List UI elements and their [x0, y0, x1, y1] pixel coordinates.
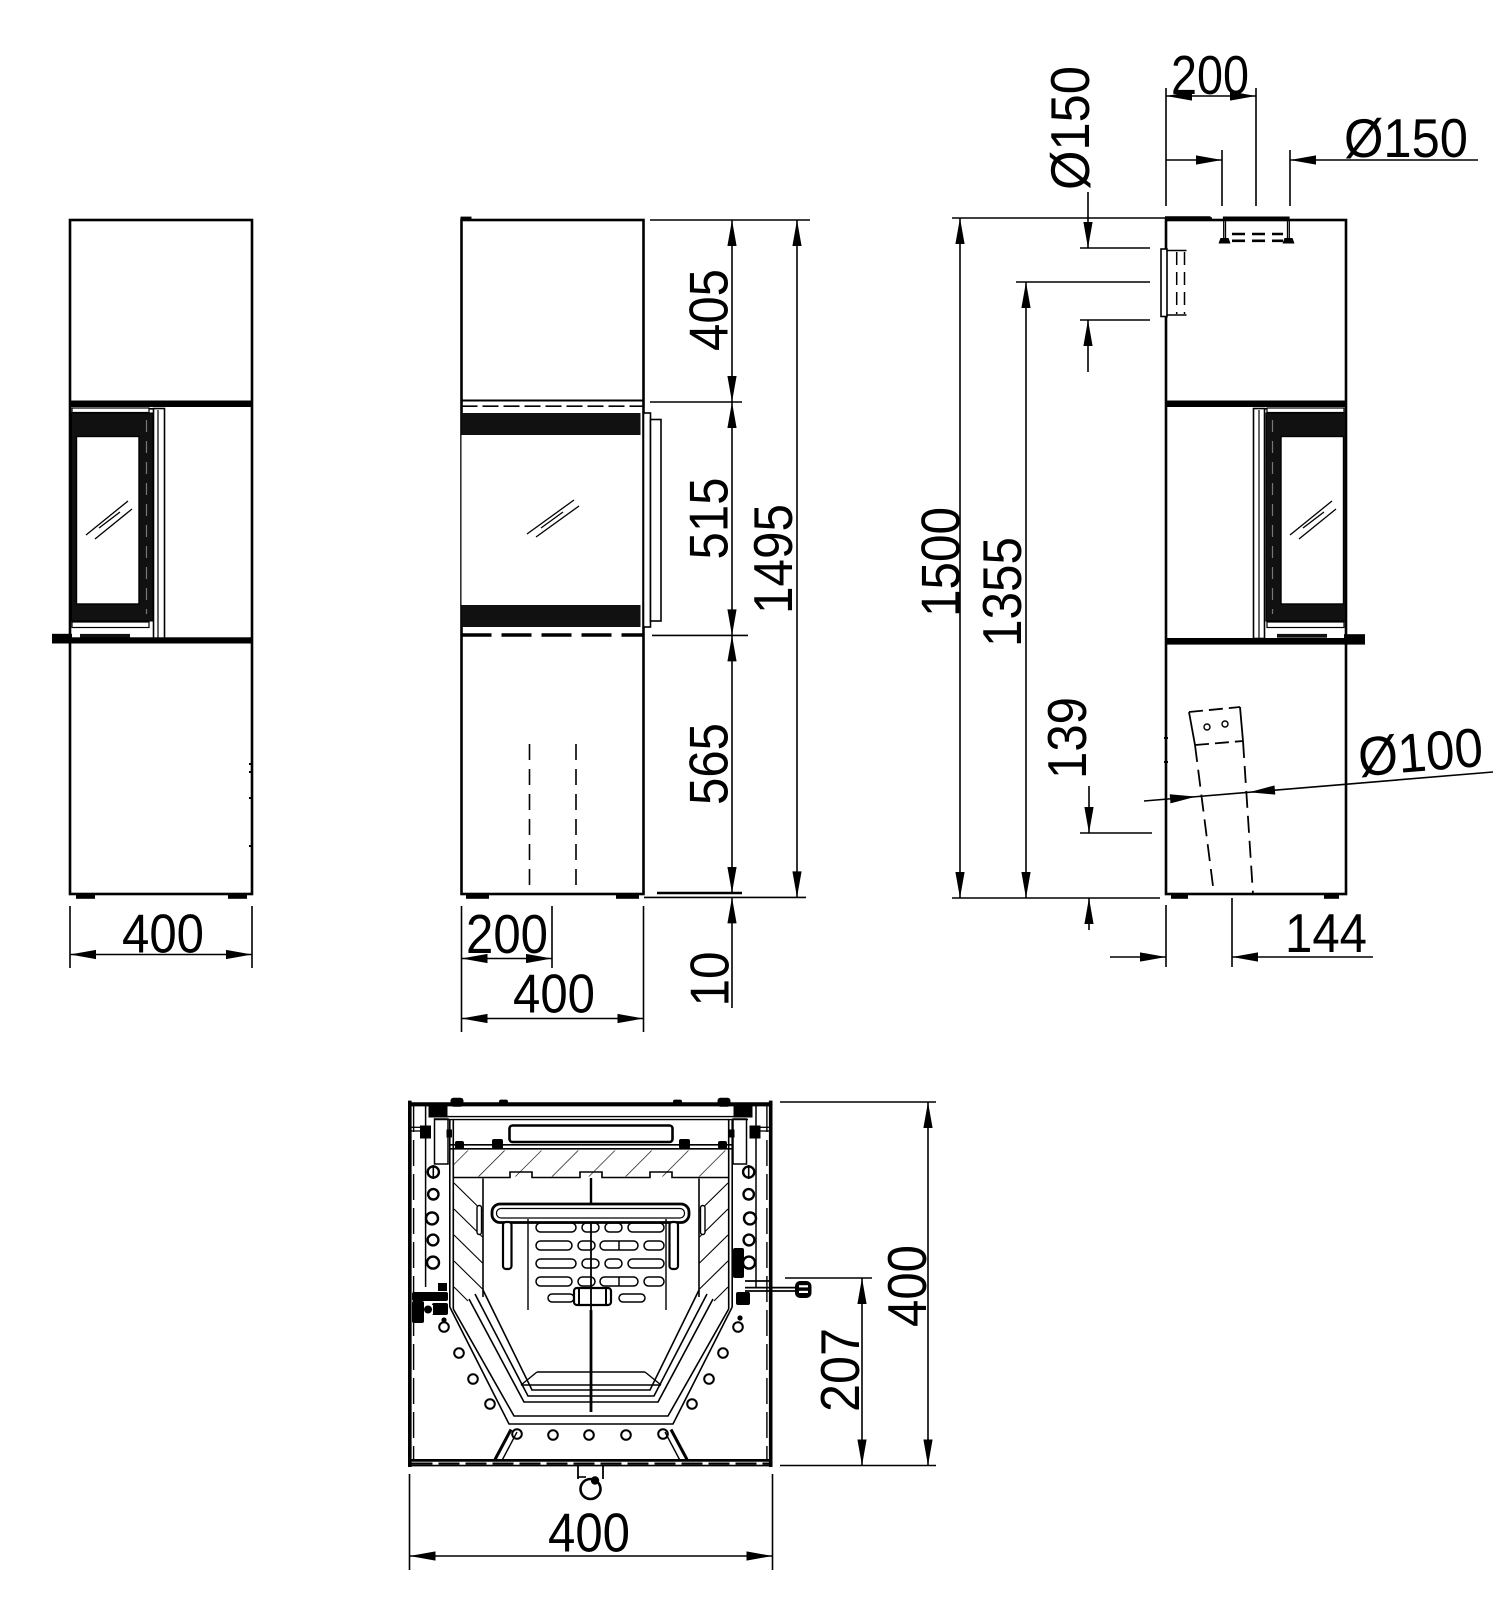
svg-text:1355: 1355 [971, 537, 1033, 647]
svg-text:1500: 1500 [910, 507, 972, 617]
svg-text:Ø100: Ø100 [1356, 716, 1486, 788]
svg-text:200: 200 [1171, 44, 1249, 106]
svg-text:1495: 1495 [742, 504, 804, 614]
svg-text:400: 400 [548, 1502, 630, 1564]
svg-text:144: 144 [1285, 902, 1367, 964]
svg-text:400: 400 [513, 963, 595, 1025]
svg-text:515: 515 [678, 478, 740, 560]
svg-text:400: 400 [122, 903, 204, 965]
svg-text:400: 400 [876, 1245, 938, 1327]
svg-text:200: 200 [466, 903, 548, 965]
svg-text:139: 139 [1036, 697, 1098, 779]
svg-text:405: 405 [678, 269, 740, 351]
svg-text:207: 207 [809, 1328, 871, 1412]
svg-text:Ø150: Ø150 [1344, 107, 1468, 169]
svg-text:10: 10 [679, 952, 741, 1007]
svg-text:565: 565 [678, 723, 740, 805]
svg-text:Ø150: Ø150 [1039, 66, 1101, 190]
